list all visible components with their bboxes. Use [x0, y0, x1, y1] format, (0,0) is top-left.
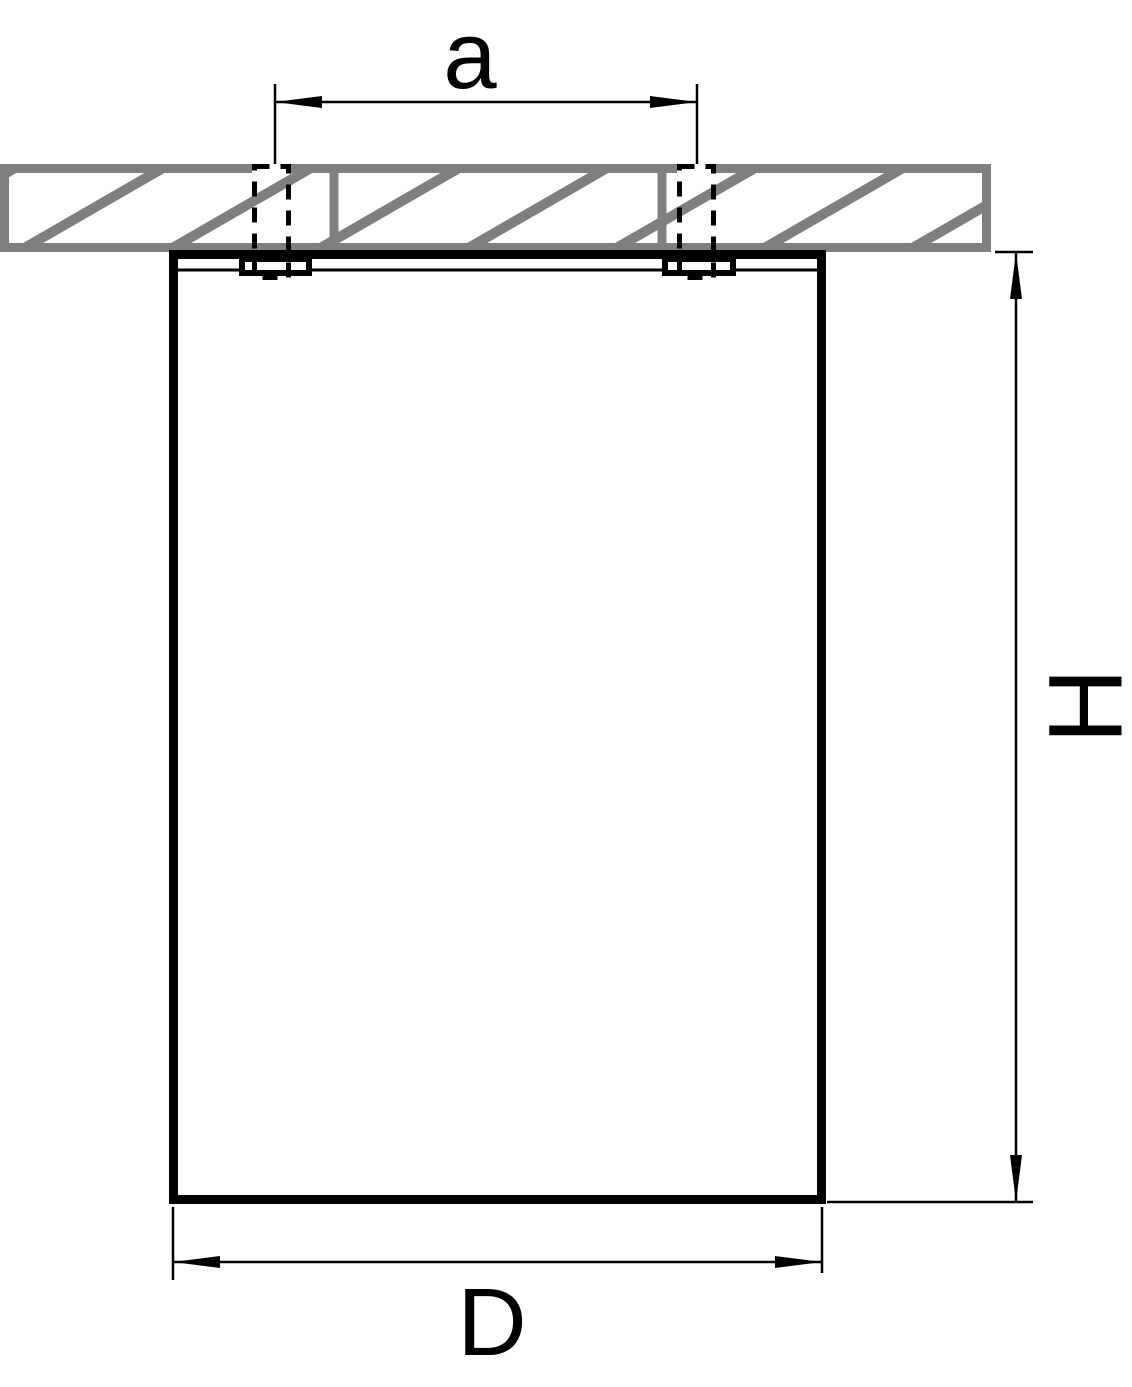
dim-h-label: H — [1028, 668, 1132, 744]
dim-d-arrow-right — [775, 1256, 822, 1268]
dimension-drawing: a H D — [0, 0, 1132, 1387]
ceiling-section — [0, 163, 991, 252]
fixture — [174, 255, 822, 1200]
mounting-clip-right — [665, 259, 733, 273]
dim-a-arrow-left — [275, 96, 322, 108]
dim-h-arrow-bottom — [1010, 1155, 1022, 1202]
dim-a-label: a — [443, 2, 497, 109]
dim-d-arrow-left — [173, 1256, 220, 1268]
dim-a-arrow-right — [650, 96, 697, 108]
dimension-h: H — [827, 252, 1132, 1202]
dim-h-arrow-top — [1010, 252, 1022, 299]
ceiling-hatch-fill — [0, 164, 991, 252]
dimension-d: D — [173, 1207, 822, 1376]
drawing-canvas: a H D — [0, 0, 1132, 1387]
fixture-body — [174, 255, 822, 1200]
dim-d-label: D — [457, 1269, 526, 1376]
dimension-a: a — [275, 2, 697, 164]
